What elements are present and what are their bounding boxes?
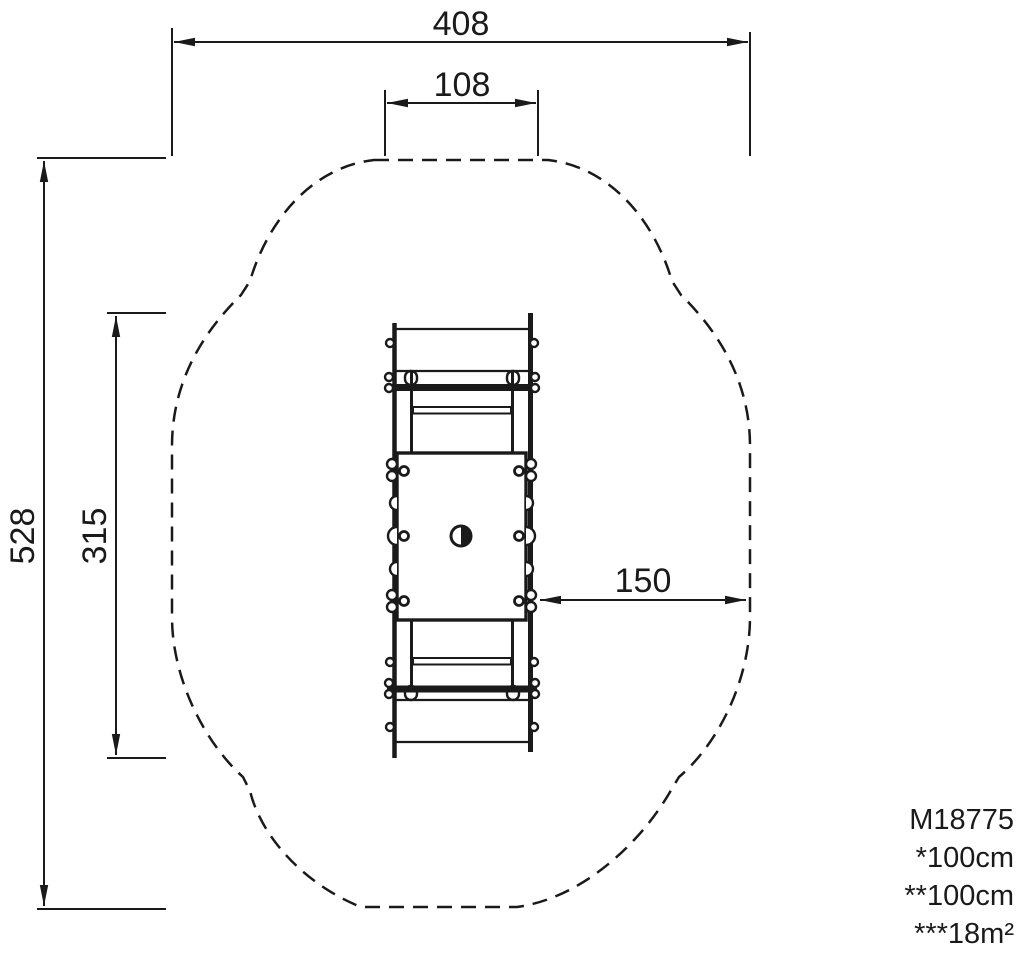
equipment-plan-view [385,313,539,758]
overall-width-label: 408 [433,5,490,43]
top-step-bar [413,407,511,414]
legend-line-3: ***18m² [904,915,1014,953]
side-clearance-label: 150 [615,562,672,600]
dimension-equipment-length: 315 [76,313,166,758]
plan-drawing: 408 108 528 315 150 [0,0,1024,963]
dimension-inner-top-width: 108 [385,66,538,156]
dimension-side-clearance: 150 [540,562,746,600]
technical-drawing-canvas: 408 108 528 315 150 [0,0,1024,963]
bottom-step-bar [413,658,511,665]
model-number: M18775 [904,801,1014,839]
inner-top-width-label: 108 [434,66,491,104]
overall-depth-label: 528 [4,508,42,565]
product-legend: M18775 *100cm **100cm ***18m² [904,801,1014,953]
legend-line-1: *100cm [904,839,1014,877]
equipment-length-label: 315 [76,508,114,565]
legend-line-2: **100cm [904,877,1014,915]
pivot-icon [451,526,471,546]
